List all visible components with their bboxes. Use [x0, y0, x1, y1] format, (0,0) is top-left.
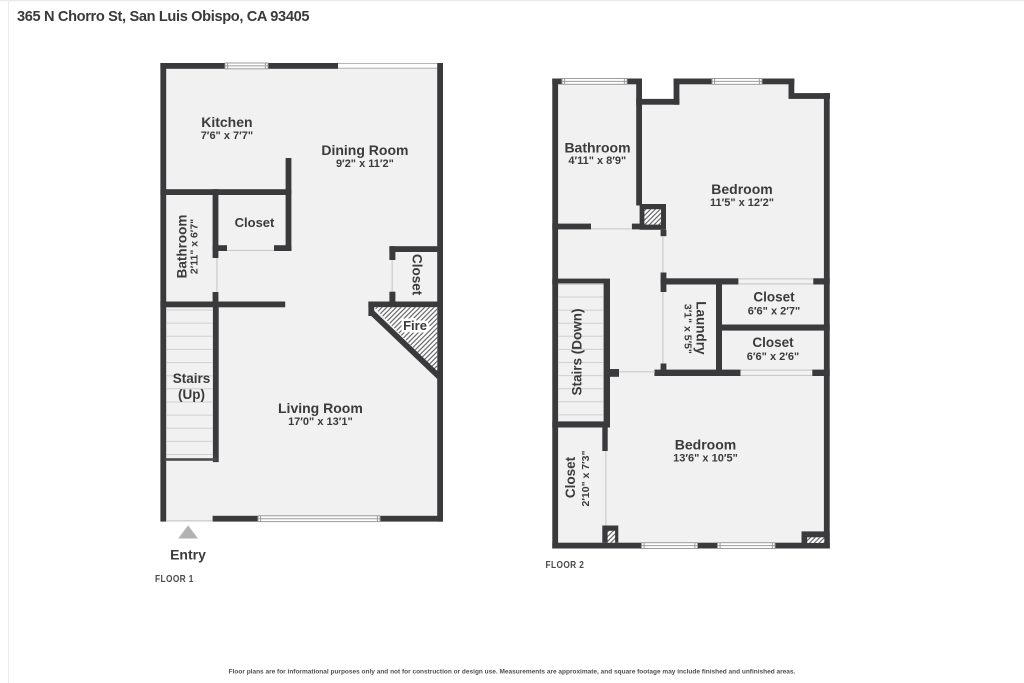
svg-text:Closet: Closet	[753, 290, 795, 305]
svg-text:6′6" x 2′7": 6′6" x 2′7"	[748, 306, 800, 318]
svg-text:7′6" x 7′7": 7′6" x 7′7"	[201, 130, 253, 142]
svg-text:365 N Chorro St, San Luis Obis: 365 N Chorro St, San Luis Obispo, CA 934…	[17, 9, 309, 25]
svg-text:Dining Room: Dining Room	[321, 142, 408, 158]
svg-text:Closet: Closet	[235, 215, 275, 230]
svg-text:Laundry: Laundry	[693, 301, 708, 355]
svg-text:Floor plans are for informatio: Floor plans are for informational purpos…	[229, 668, 796, 675]
svg-text:4′11" x 8′9": 4′11" x 8′9"	[568, 155, 626, 167]
svg-text:Kitchen: Kitchen	[201, 114, 252, 130]
svg-text:2′10" x 7′3": 2′10" x 7′3"	[580, 451, 592, 507]
svg-text:3′1" x 5′5": 3′1" x 5′5"	[681, 304, 693, 354]
svg-text:Closet: Closet	[410, 254, 425, 296]
svg-text:(Up): (Up)	[178, 387, 205, 402]
svg-text:FLOOR 2: FLOOR 2	[546, 558, 585, 570]
svg-text:Fire: Fire	[403, 318, 427, 333]
svg-text:13′6" x 10′5": 13′6" x 10′5"	[673, 453, 738, 465]
svg-text:17′0" x 13′1": 17′0" x 13′1"	[288, 416, 353, 428]
svg-text:Bathroom: Bathroom	[564, 140, 630, 156]
svg-text:Bathroom: Bathroom	[175, 215, 190, 279]
svg-text:9′2" x 11′2": 9′2" x 11′2"	[336, 158, 394, 170]
svg-text:2′11" x 6′7": 2′11" x 6′7"	[188, 219, 200, 274]
svg-text:Closet: Closet	[563, 456, 578, 498]
svg-text:Closet: Closet	[752, 335, 794, 350]
svg-text:FLOOR 1: FLOOR 1	[155, 572, 194, 584]
svg-text:6′6" x 2′6": 6′6" x 2′6"	[747, 351, 799, 363]
svg-text:Bedroom: Bedroom	[711, 181, 772, 197]
svg-text:Entry: Entry	[170, 547, 206, 563]
svg-text:Living Room: Living Room	[278, 400, 363, 416]
svg-text:Stairs: Stairs	[173, 371, 211, 386]
svg-text:Bedroom: Bedroom	[675, 437, 736, 453]
svg-text:11′5" x 12′2": 11′5" x 12′2"	[710, 197, 774, 209]
svg-text:Stairs (Down): Stairs (Down)	[570, 308, 585, 395]
